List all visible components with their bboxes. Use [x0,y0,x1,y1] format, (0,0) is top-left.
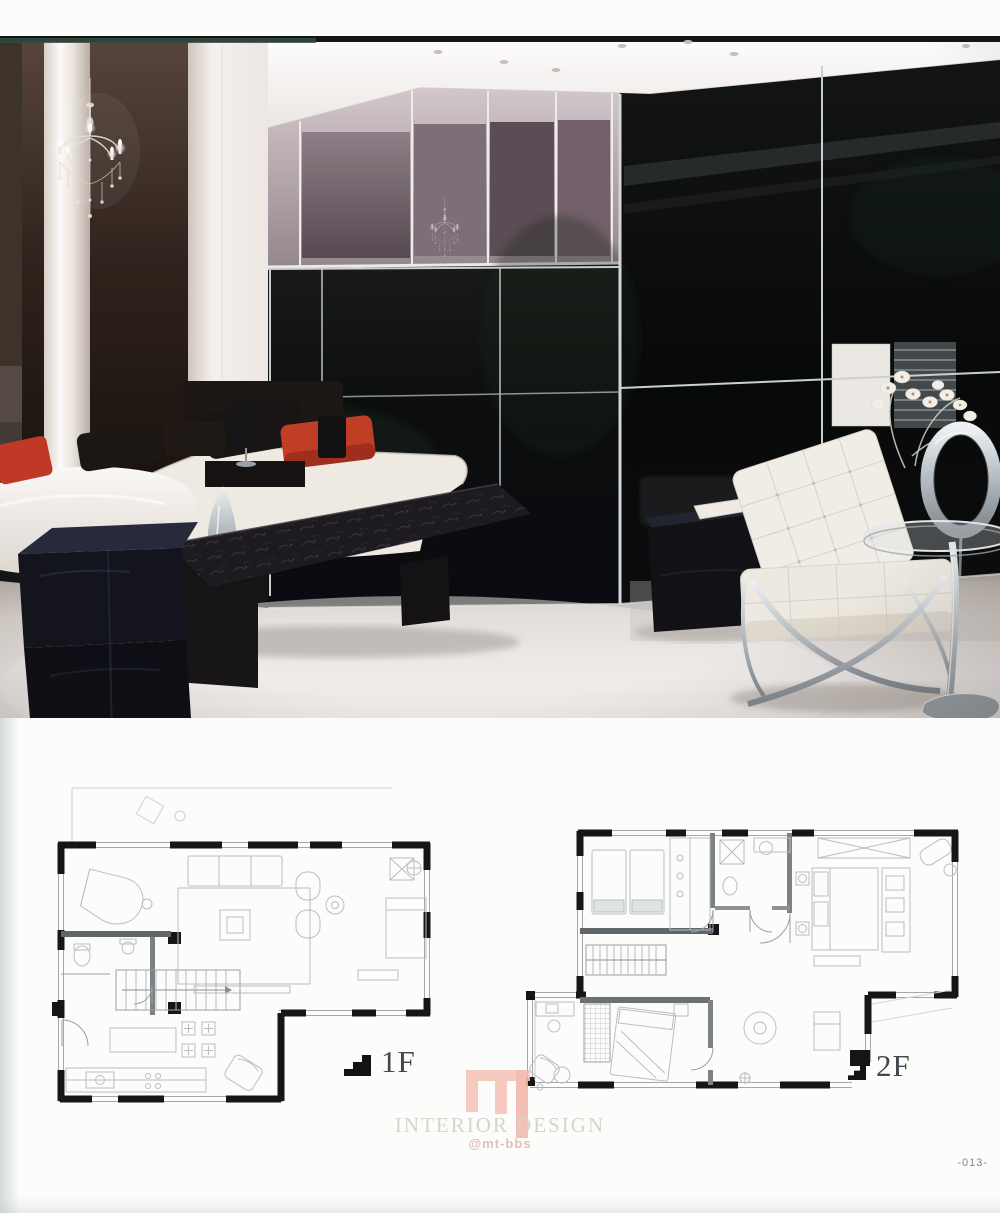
grand-piano [78,869,147,929]
toilet [74,946,90,966]
plan2-label-text: 2F [876,1048,911,1084]
lounge-chair [223,1053,264,1092]
plan2-walls [576,831,958,1085]
page-edge-shading [0,718,20,1213]
master-bed [812,868,878,950]
plan1-balcony [72,788,392,842]
watermark-handle: @mt-bbs [380,1136,620,1151]
interior-photo [0,36,1000,718]
armchair [296,872,320,900]
bed [386,898,426,958]
floor-label-2f: 2F [848,1048,911,1084]
bed-lower [610,1007,676,1082]
book-page: 1F 2F INTERIOR DESIGN @mt-bbs -013- [0,0,1000,1213]
floor-label-1f: 1F [344,1044,416,1080]
plan1-partition [61,931,171,937]
page-bottom-shading [0,1197,1000,1213]
plan2-partition [710,833,715,908]
round-table [744,1012,776,1044]
stairs-icon [344,1055,371,1076]
plan1-label-text: 1F [381,1044,416,1080]
kitchen-island [110,1028,176,1052]
page-number: -013- [957,1157,988,1169]
sofa [188,856,282,886]
hatch-cabinet [584,1004,610,1062]
toilet [723,877,737,895]
plan2-stairs [586,945,666,975]
stairs-icon [848,1066,866,1080]
vignette [0,36,1000,718]
plan1-doors [62,986,152,1046]
